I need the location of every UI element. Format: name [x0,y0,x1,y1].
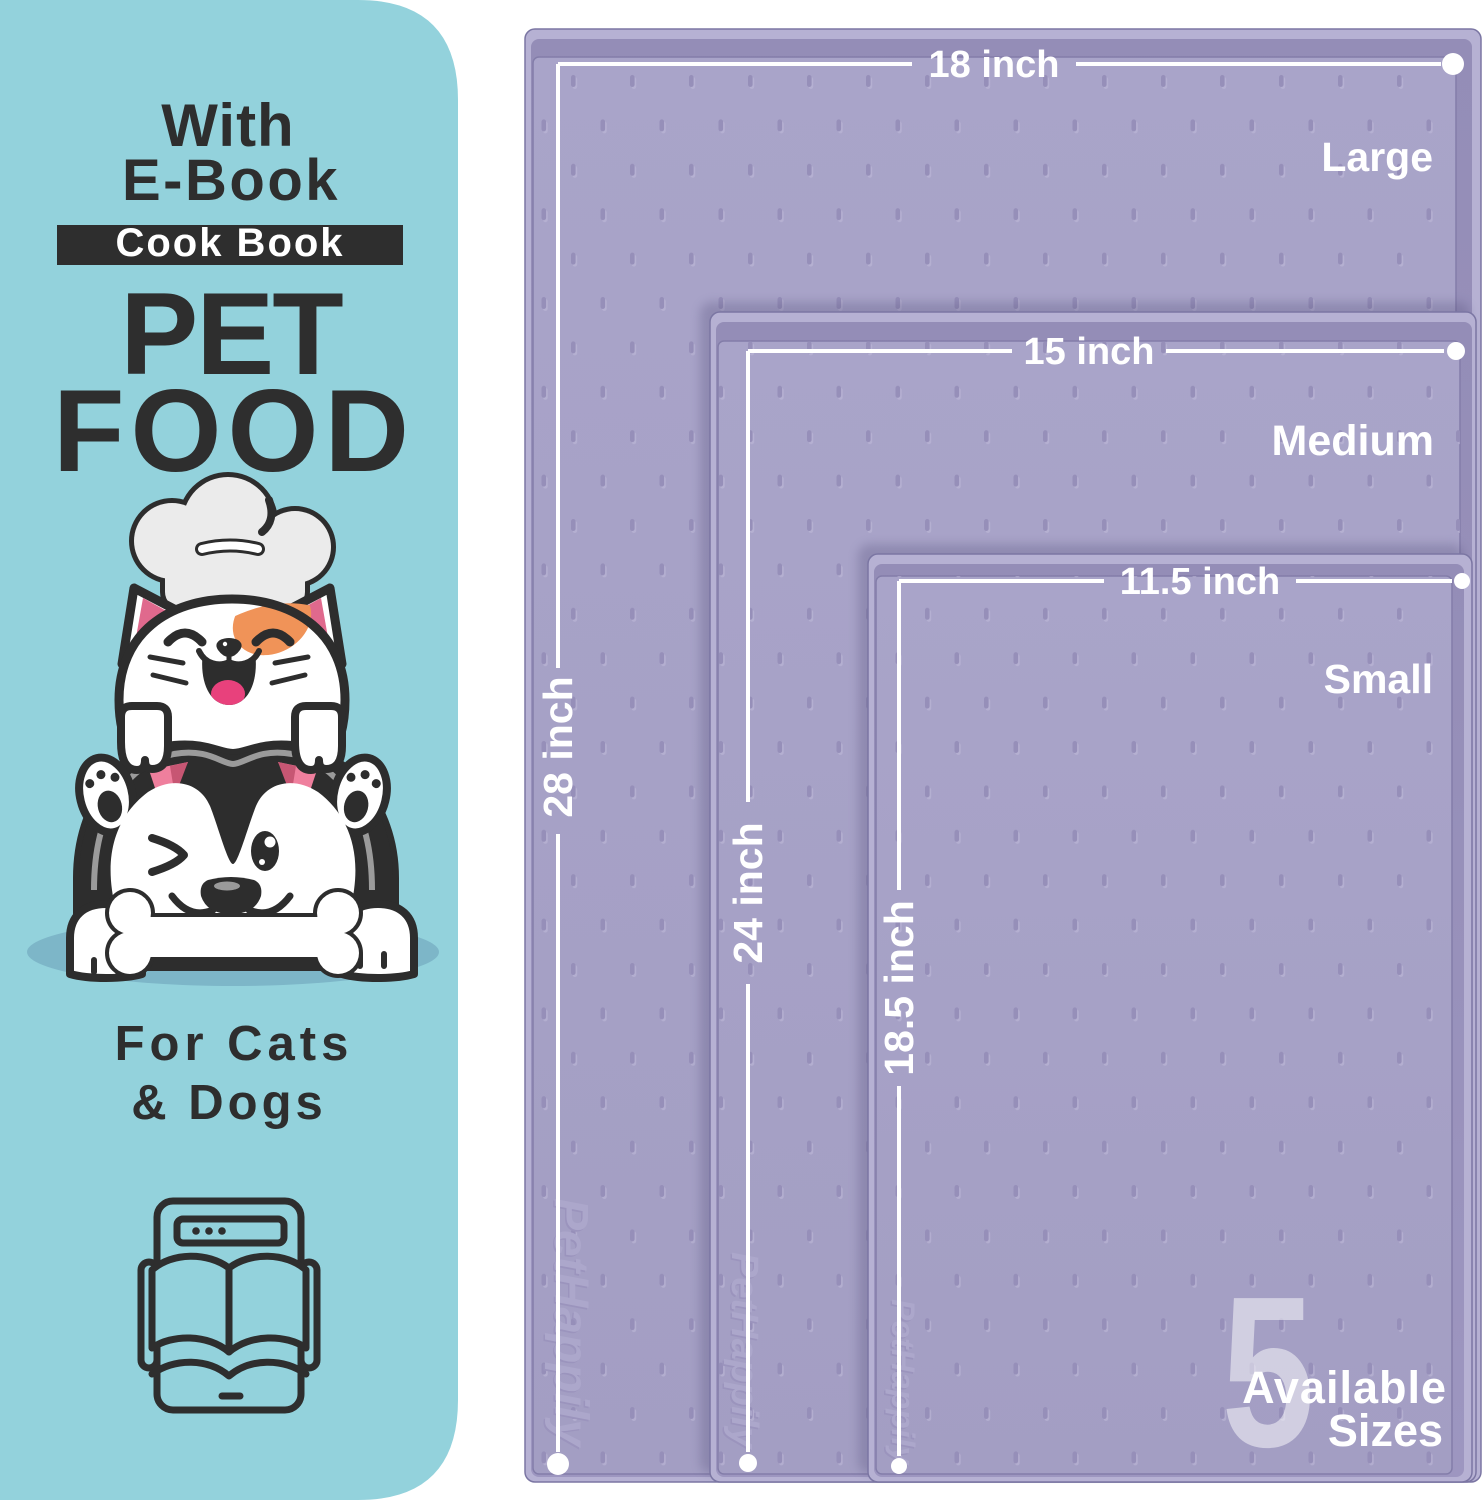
svg-text:28 inch: 28 inch [535,676,581,817]
svg-text:PetHappily: PetHappily [544,1198,597,1448]
svg-text:For Cats: For Cats [115,1017,354,1071]
svg-text:Medium: Medium [1272,417,1434,465]
svg-text:& Dogs: & Dogs [131,1076,327,1130]
svg-text:18.5 inch: 18.5 inch [876,900,922,1075]
svg-text:Sizes: Sizes [1328,1405,1443,1456]
svg-text:PetHappily: PetHappily [723,1252,765,1450]
svg-text:24 inch: 24 inch [725,822,771,963]
svg-text:Small: Small [1324,656,1433,702]
svg-text:15 inch: 15 inch [1024,331,1155,373]
svg-text:E-Book: E-Book [122,148,340,213]
svg-text:11.5 inch: 11.5 inch [1120,561,1281,603]
svg-text:18 inch: 18 inch [929,44,1060,86]
svg-text:Large: Large [1321,134,1433,180]
svg-text:Cook Book: Cook Book [115,221,344,265]
svg-text:PetHappily: PetHappily [885,1299,921,1467]
